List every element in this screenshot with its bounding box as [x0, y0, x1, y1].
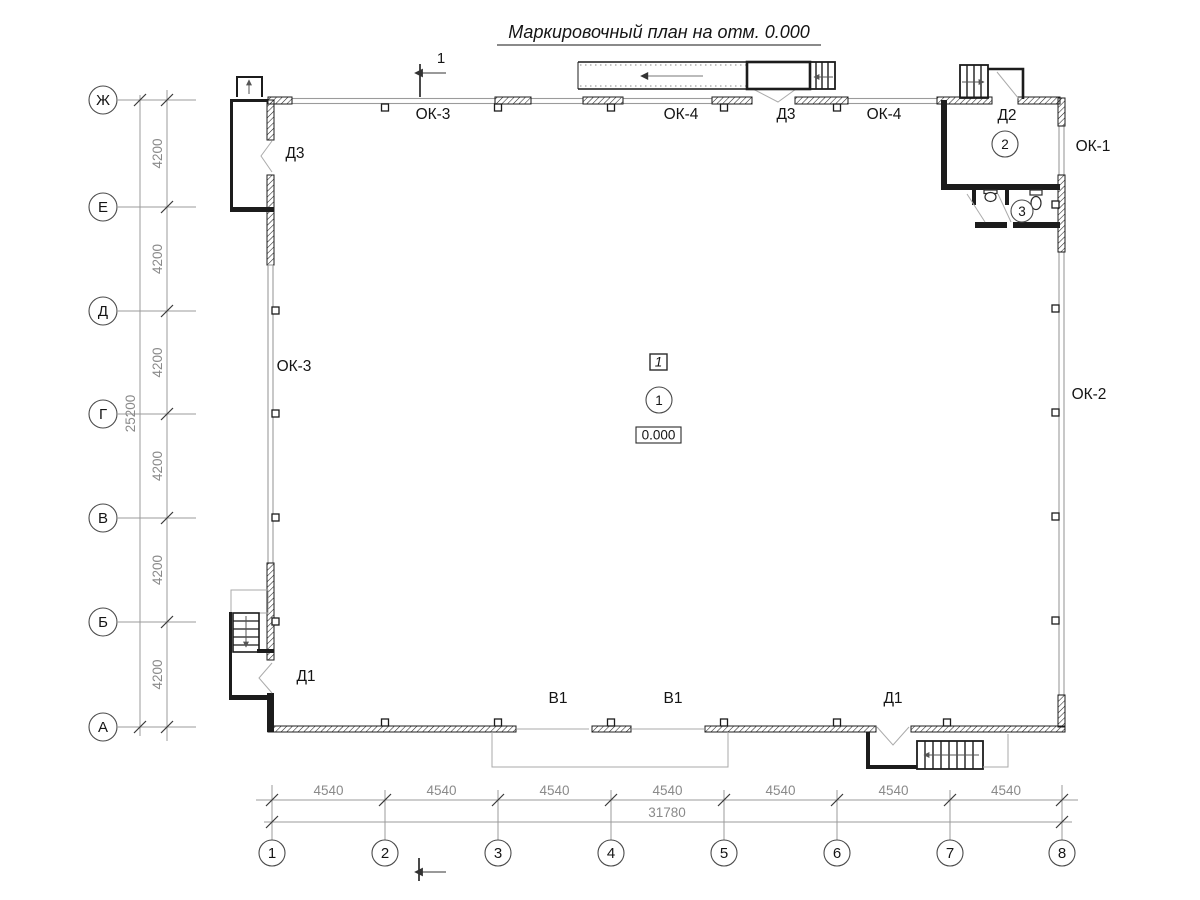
window-band-ok4-left — [623, 99, 712, 104]
position-marker-label: 1 — [655, 355, 663, 370]
axis-row-label: Е — [98, 199, 108, 216]
floor-plan-drawing: Маркировочный план на отм. 0.000 1 Ж Е — [0, 0, 1200, 900]
dim-col-step: 4540 — [878, 783, 908, 798]
dim-row-step: 4200 — [150, 555, 165, 585]
dim-col-total: 31780 — [648, 805, 686, 820]
label-ok3-left: ОК-3 — [277, 358, 312, 375]
label-v1-right: В1 — [664, 690, 683, 707]
axis-col-label: 6 — [833, 845, 841, 862]
dim-row-step: 4200 — [150, 659, 165, 689]
axis-row-label: В — [98, 510, 108, 527]
axis-row-label: А — [98, 719, 108, 736]
dim-row-total: 25200 — [123, 395, 138, 433]
label-ok2: ОК-2 — [1072, 386, 1107, 403]
drawing-title: Маркировочный план на отм. 0.000 — [508, 22, 810, 42]
dim-row-step: 4200 — [150, 138, 165, 168]
label-ok1: ОК-1 — [1076, 138, 1111, 155]
label-ok4-right: ОК-4 — [867, 106, 902, 123]
label-d1-left: Д1 — [296, 668, 315, 685]
label-ok3-top: ОК-3 — [416, 106, 451, 123]
label-d3-left: Д3 — [285, 145, 304, 162]
dim-col-step: 4540 — [426, 783, 456, 798]
axis-col-label: 7 — [946, 845, 954, 862]
axis-row-label: Г — [99, 406, 107, 423]
label-ok4-left: ОК-4 — [664, 106, 699, 123]
dim-row-step: 4200 — [150, 244, 165, 274]
window-band-ok3-top — [292, 99, 495, 104]
elevation-label: 0.000 — [642, 428, 676, 443]
sheet-background — [0, 0, 1200, 900]
axis-col-label: 4 — [607, 845, 615, 862]
section-label: 1 — [437, 50, 445, 67]
sink-icon — [985, 193, 996, 202]
axis-row-label: Ж — [96, 92, 110, 109]
label-d2: Д2 — [997, 107, 1016, 124]
dim-row-step: 4200 — [150, 451, 165, 481]
label-d3-top: Д3 — [776, 106, 795, 123]
room-number-label: 1 — [655, 393, 663, 408]
dim-col-step: 4540 — [652, 783, 682, 798]
floor-plan-sheet: Маркировочный план на отм. 0.000 1 Ж Е — [0, 0, 1200, 900]
axis-col-label: 8 — [1058, 845, 1066, 862]
label-v1-left: В1 — [549, 690, 568, 707]
axis-row-label: Д — [98, 303, 108, 320]
title-block: Маркировочный план на отм. 0.000 — [497, 22, 821, 45]
toilet-icon — [1030, 190, 1042, 195]
dim-col-step: 4540 — [539, 783, 569, 798]
dim-col-step: 4540 — [991, 783, 1021, 798]
dim-col-step: 4540 — [765, 783, 795, 798]
window-band-top — [531, 99, 583, 104]
axis-col-label: 5 — [720, 845, 728, 862]
axis-col-label: 3 — [494, 845, 502, 862]
label-d1-right: Д1 — [883, 690, 902, 707]
window-band-ok1 — [1059, 126, 1064, 175]
axis-row-label: Б — [98, 614, 108, 631]
room-number-label: 2 — [1001, 137, 1009, 152]
window-band-ok4-right — [848, 99, 937, 104]
axis-col-label: 2 — [381, 845, 389, 862]
dim-col-step: 4540 — [313, 783, 343, 798]
axis-col-label: 1 — [268, 845, 276, 862]
window-band-ok2 — [1059, 252, 1064, 695]
dim-row-step: 4200 — [150, 347, 165, 377]
room-number-label: 3 — [1018, 204, 1026, 219]
